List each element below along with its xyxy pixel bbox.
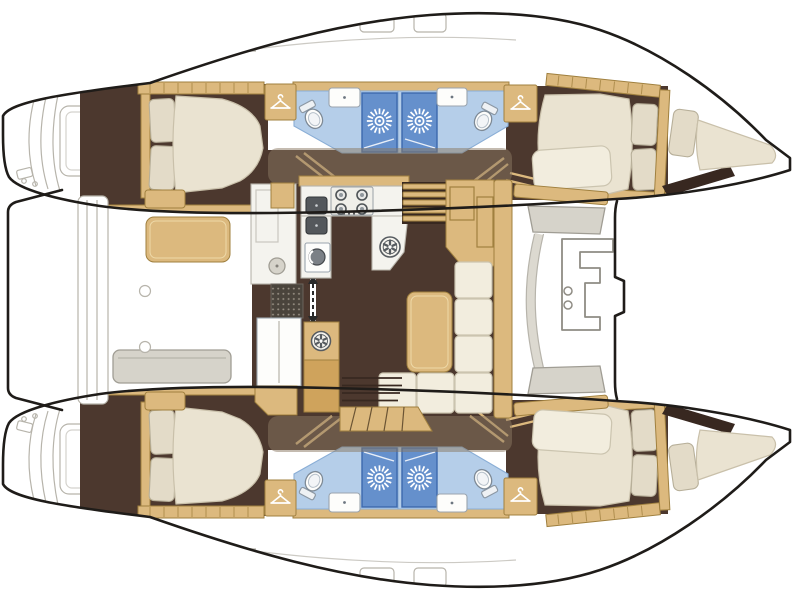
aft-platform-outline bbox=[8, 190, 62, 410]
foredeck bbox=[514, 145, 613, 454]
pillow bbox=[631, 454, 658, 496]
spoked-hatch-icon bbox=[380, 237, 400, 257]
pillow bbox=[631, 148, 658, 190]
bench-backrest bbox=[528, 206, 605, 234]
sunburst-shower-icon bbox=[407, 108, 432, 133]
shelf-slats bbox=[138, 506, 264, 518]
seat-cushion bbox=[532, 145, 613, 190]
pillow bbox=[149, 457, 176, 501]
sunburst-shower-icon bbox=[407, 465, 432, 490]
wardrobe bbox=[504, 85, 537, 122]
shelf-slats bbox=[138, 82, 264, 94]
aft-cockpit bbox=[78, 196, 231, 404]
bed-headboard bbox=[141, 402, 150, 506]
pillow bbox=[149, 145, 176, 190]
wardrobe bbox=[265, 84, 296, 120]
cup-holder bbox=[564, 301, 572, 309]
starboard-bathrooms bbox=[293, 447, 509, 518]
bed-step bbox=[145, 392, 185, 410]
salon-table bbox=[407, 292, 452, 372]
galley-cabinet-lower bbox=[304, 360, 339, 412]
pillow bbox=[149, 98, 176, 142]
chart-table bbox=[446, 180, 494, 266]
pillow bbox=[149, 409, 176, 454]
sunburst-shower-icon bbox=[367, 465, 392, 490]
floor-plan-svg bbox=[0, 0, 800, 600]
cockpit-table bbox=[146, 217, 230, 262]
seat-cushion bbox=[532, 409, 613, 454]
cup-holder bbox=[140, 286, 151, 297]
pillow bbox=[631, 103, 658, 145]
floor-plan bbox=[0, 0, 800, 600]
fridge bbox=[305, 243, 330, 272]
counter-edge bbox=[299, 176, 409, 186]
aft-cabinet bbox=[271, 183, 294, 208]
port-bathrooms bbox=[293, 82, 509, 153]
spoked-hatch-icon bbox=[312, 332, 331, 351]
pillow bbox=[631, 409, 658, 451]
salon-side-cabinet bbox=[494, 180, 512, 418]
transom-bench bbox=[78, 196, 108, 404]
bed-headboard bbox=[141, 94, 150, 198]
cup-holder bbox=[140, 342, 151, 353]
cup-holder bbox=[564, 287, 572, 295]
wardrobe bbox=[504, 478, 537, 515]
bench-backrest bbox=[528, 366, 605, 394]
entry-mat bbox=[271, 284, 303, 318]
wardrobe bbox=[265, 480, 296, 516]
sunburst-shower-icon bbox=[367, 108, 392, 133]
bed-step bbox=[145, 190, 185, 208]
companionway-steps-port bbox=[402, 182, 448, 224]
forward-bench bbox=[562, 239, 613, 330]
bow-platform-edge bbox=[615, 201, 624, 399]
cockpit-bench bbox=[113, 350, 231, 383]
